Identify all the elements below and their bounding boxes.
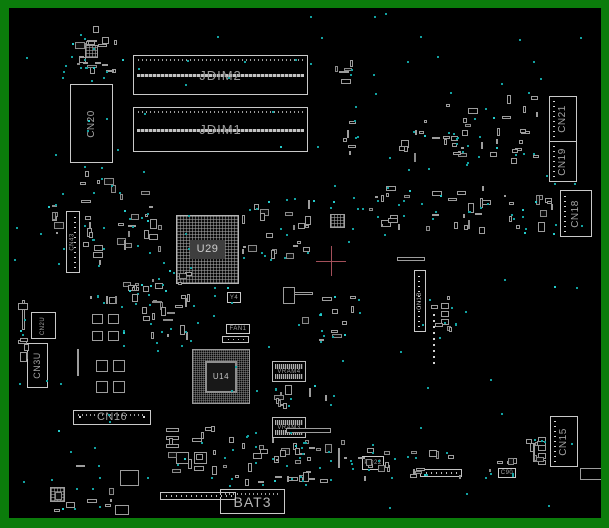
- part: [459, 475, 461, 479]
- test-point: [62, 77, 64, 79]
- test-point: [111, 185, 113, 187]
- part: [235, 475, 239, 478]
- part: [108, 314, 119, 324]
- test-point: [157, 350, 159, 352]
- test-point: [286, 234, 288, 236]
- part: [266, 233, 273, 238]
- test-point: [468, 211, 470, 213]
- part: [369, 208, 373, 211]
- test-point: [553, 233, 555, 235]
- component-y4[interactable]: Y4: [227, 292, 241, 303]
- part: [102, 64, 108, 66]
- test-point: [84, 59, 86, 61]
- pin-hole: [433, 314, 435, 316]
- component-fan1[interactable]: FAN1: [226, 324, 250, 334]
- test-point: [554, 286, 556, 288]
- test-point: [103, 77, 105, 79]
- part: [350, 296, 356, 299]
- test-point: [247, 435, 249, 437]
- component-cn3u[interactable]: CN3U: [27, 343, 48, 388]
- part: [482, 186, 484, 191]
- test-point: [554, 183, 556, 185]
- test-point: [490, 473, 492, 475]
- test-point: [190, 340, 192, 342]
- component-vram4[interactable]: VRAM4: [272, 361, 306, 382]
- test-point: [214, 287, 216, 289]
- part: [113, 381, 125, 393]
- test-point: [141, 284, 143, 286]
- part: [343, 138, 347, 142]
- part: [410, 474, 417, 478]
- test-point: [428, 168, 430, 170]
- test-point: [123, 332, 125, 334]
- test-point: [377, 216, 379, 218]
- part: [143, 286, 149, 292]
- test-point: [185, 233, 187, 235]
- part: [185, 298, 187, 307]
- part: [293, 292, 313, 295]
- part: [120, 470, 139, 486]
- test-point: [55, 204, 57, 206]
- test-point: [261, 252, 263, 254]
- part: [229, 437, 234, 443]
- component-cn18[interactable]: CN18: [560, 190, 592, 237]
- part: [212, 466, 217, 475]
- pin-row: [138, 111, 303, 113]
- test-point: [394, 458, 396, 460]
- part: [364, 476, 366, 481]
- test-point: [80, 67, 82, 69]
- part: [415, 130, 417, 135]
- part: [424, 120, 427, 123]
- test-point: [409, 190, 411, 192]
- component-cn19[interactable]: CN19: [549, 141, 577, 182]
- test-point: [58, 263, 60, 265]
- test-point: [76, 488, 78, 490]
- test-point: [295, 445, 297, 447]
- test-point: [466, 493, 468, 495]
- part: [76, 465, 85, 467]
- component-cn3u-label: CN3U: [33, 352, 42, 379]
- part: [243, 246, 246, 248]
- test-point: [348, 241, 350, 243]
- board-canvas[interactable]: JDIM2JDIM1CN20CN43CN2UCN3UU29U14Y4FAN1VR…: [9, 8, 601, 518]
- test-point: [165, 290, 167, 292]
- part: [142, 307, 147, 314]
- test-point: [544, 441, 546, 443]
- part: [378, 465, 385, 472]
- test-point: [188, 215, 190, 217]
- test-point: [317, 146, 319, 148]
- test-point: [415, 457, 417, 459]
- part: [168, 452, 177, 458]
- test-point: [103, 302, 105, 304]
- part: [507, 95, 511, 104]
- test-point: [46, 380, 48, 382]
- pin-hole: [433, 356, 435, 358]
- part: [426, 226, 430, 231]
- test-point: [93, 48, 95, 50]
- part: [414, 153, 416, 162]
- test-point: [161, 331, 163, 333]
- part: [302, 317, 309, 324]
- test-point: [496, 147, 498, 149]
- test-point: [163, 262, 165, 264]
- test-point: [147, 213, 149, 215]
- part: [520, 129, 526, 133]
- component-y4-label: Y4: [230, 295, 238, 301]
- test-point: [437, 56, 439, 58]
- part: [83, 242, 89, 247]
- pin-hole: [433, 350, 435, 352]
- test-point: [294, 198, 296, 200]
- test-point: [103, 227, 105, 229]
- test-point: [188, 248, 190, 250]
- test-point: [504, 279, 506, 281]
- part: [152, 279, 154, 282]
- part: [536, 195, 540, 205]
- part: [519, 140, 523, 144]
- part: [94, 245, 103, 251]
- part: [90, 296, 92, 299]
- test-point: [330, 207, 332, 209]
- component-cn16[interactable]: CN16: [73, 410, 151, 425]
- test-point: [117, 149, 119, 151]
- test-point: [525, 228, 527, 230]
- test-point: [270, 259, 272, 261]
- boardview-stage: JDIM2JDIM1CN20CN43CN2UCN3UU29U14Y4FAN1VR…: [0, 0, 609, 528]
- test-point: [62, 193, 64, 195]
- part: [432, 137, 440, 139]
- test-point: [80, 34, 82, 36]
- part: [150, 219, 157, 229]
- part: [118, 223, 124, 226]
- test-point: [87, 130, 89, 132]
- test-point: [156, 342, 158, 344]
- test-point: [377, 200, 379, 202]
- test-point: [147, 477, 149, 479]
- test-point: [93, 192, 95, 194]
- component-cn20[interactable]: CN20: [70, 84, 113, 163]
- test-point: [108, 414, 110, 416]
- part: [128, 231, 130, 237]
- test-point: [330, 479, 332, 481]
- part: [79, 416, 81, 418]
- part: [248, 245, 257, 252]
- part: [75, 42, 85, 49]
- part: [172, 469, 181, 473]
- test-point: [123, 330, 125, 332]
- part: [375, 196, 378, 198]
- test-point: [487, 203, 489, 205]
- test-point: [272, 458, 274, 460]
- part: [309, 447, 315, 449]
- test-point: [300, 476, 302, 478]
- test-point: [373, 74, 375, 76]
- test-point: [515, 154, 517, 156]
- test-point: [522, 209, 524, 211]
- test-point: [185, 84, 187, 86]
- test-point: [24, 319, 26, 321]
- test-point: [501, 83, 503, 85]
- test-point: [14, 259, 16, 261]
- test-point: [255, 446, 257, 448]
- component-jdim2[interactable]: JDIM2: [133, 55, 308, 95]
- test-point: [456, 143, 458, 145]
- part: [280, 404, 284, 406]
- part: [272, 438, 274, 443]
- part: [93, 26, 99, 33]
- test-point: [150, 285, 152, 287]
- test-point: [149, 252, 151, 254]
- test-point: [193, 305, 195, 307]
- test-point: [231, 390, 233, 392]
- test-point: [351, 69, 353, 71]
- part: [530, 443, 534, 452]
- part: [175, 305, 183, 308]
- test-point: [255, 432, 257, 434]
- test-point: [457, 137, 459, 139]
- component-cn1b[interactable]: CN1B: [414, 270, 426, 332]
- part: [526, 439, 532, 444]
- part: [540, 210, 547, 217]
- part: [185, 272, 187, 274]
- part: [158, 246, 161, 252]
- test-point: [429, 299, 431, 301]
- component-cn15[interactable]: CN15: [550, 416, 578, 467]
- part: [149, 206, 153, 208]
- part: [293, 245, 298, 247]
- test-point: [546, 175, 548, 177]
- test-point: [243, 257, 245, 259]
- test-point: [301, 447, 303, 449]
- test-point: [350, 74, 352, 76]
- part: [462, 130, 468, 136]
- part: [536, 112, 538, 117]
- test-point: [302, 480, 304, 482]
- component-cn21[interactable]: CN21: [549, 96, 577, 142]
- component-cn43-label: CN43: [70, 233, 76, 250]
- test-point: [462, 151, 464, 153]
- test-point: [548, 505, 550, 507]
- part: [286, 253, 294, 259]
- test-point: [523, 153, 525, 155]
- part: [124, 240, 126, 250]
- test-point: [426, 474, 428, 476]
- part: [349, 151, 351, 155]
- test-point: [227, 287, 229, 289]
- part: [115, 505, 129, 515]
- test-point: [319, 467, 321, 469]
- test-point: [313, 200, 315, 202]
- component-cn18-label: CN18: [571, 200, 581, 228]
- test-point: [353, 197, 355, 199]
- test-point: [420, 427, 422, 429]
- part: [307, 457, 311, 461]
- part: [143, 316, 150, 321]
- test-point: [450, 92, 452, 94]
- test-point: [119, 192, 121, 194]
- part: [24, 344, 29, 351]
- test-point: [70, 451, 72, 453]
- part: [435, 323, 443, 327]
- part: [20, 338, 28, 342]
- test-point: [467, 162, 469, 164]
- test-point: [355, 106, 357, 108]
- part: [105, 504, 111, 507]
- test-point: [190, 267, 192, 269]
- part: [384, 451, 390, 455]
- test-point: [228, 77, 230, 79]
- test-point: [169, 270, 171, 272]
- part: [115, 296, 117, 304]
- component-jdim2-label: JDIM2: [199, 69, 242, 82]
- part: [97, 180, 100, 184]
- part: [87, 499, 97, 503]
- test-point: [305, 484, 307, 486]
- part: [260, 213, 265, 221]
- part: [322, 297, 332, 301]
- part: [338, 448, 340, 468]
- test-point: [187, 60, 189, 62]
- test-point: [148, 294, 150, 296]
- test-point: [84, 38, 86, 40]
- test-point: [501, 413, 503, 415]
- test-point: [256, 208, 258, 210]
- test-point: [121, 306, 123, 308]
- test-point: [143, 171, 145, 173]
- test-point: [540, 78, 542, 80]
- part: [449, 327, 452, 332]
- part: [132, 294, 138, 302]
- test-point: [162, 284, 164, 286]
- part: [95, 62, 101, 64]
- pin-dots: [564, 195, 566, 232]
- test-point: [372, 444, 374, 446]
- test-point: [435, 211, 437, 213]
- test-point: [305, 442, 307, 444]
- test-point: [310, 63, 312, 65]
- pin-hole: [433, 332, 435, 334]
- part: [242, 215, 245, 224]
- part: [320, 479, 328, 483]
- test-point: [403, 215, 405, 217]
- test-point: [485, 477, 487, 479]
- part: [305, 216, 311, 225]
- test-point: [535, 201, 537, 203]
- test-point: [94, 447, 96, 449]
- pin-hole: [433, 344, 435, 346]
- test-point: [374, 16, 376, 18]
- part: [276, 398, 279, 404]
- part: [475, 213, 482, 215]
- part: [497, 461, 503, 464]
- test-point: [389, 157, 391, 159]
- pin-row: [138, 59, 303, 61]
- test-point: [480, 207, 482, 209]
- test-point: [332, 336, 334, 338]
- pin-hole: [433, 362, 435, 364]
- test-point: [231, 478, 233, 480]
- part: [347, 130, 349, 138]
- part: [77, 63, 80, 65]
- part: [509, 216, 512, 222]
- component-bat3-label: BAT3: [234, 495, 272, 509]
- part: [151, 332, 154, 339]
- test-point: [424, 135, 426, 137]
- part: [96, 360, 108, 372]
- test-point: [320, 341, 322, 343]
- part: [285, 385, 292, 395]
- test-point: [214, 295, 216, 297]
- part: [120, 194, 123, 200]
- part: [131, 214, 139, 220]
- part: [245, 479, 249, 486]
- test-point: [74, 508, 76, 510]
- part: [77, 349, 79, 376]
- part: [348, 145, 356, 148]
- test-point: [181, 345, 183, 347]
- test-point: [533, 153, 535, 155]
- test-point: [391, 477, 393, 479]
- part: [152, 313, 155, 320]
- part: [85, 171, 89, 177]
- part: [242, 249, 244, 254]
- test-point: [512, 475, 514, 477]
- test-point: [224, 457, 226, 459]
- test-point: [302, 453, 304, 455]
- part: [141, 191, 150, 195]
- test-point: [323, 335, 325, 337]
- part: [429, 450, 437, 457]
- component-cn43[interactable]: CN43: [66, 211, 80, 273]
- test-point: [455, 324, 457, 326]
- pin-dots: [554, 421, 556, 462]
- component-cn19-label: CN19: [558, 148, 568, 176]
- part: [260, 449, 268, 454]
- test-point: [129, 218, 131, 220]
- part: [223, 465, 227, 468]
- part: [275, 476, 282, 478]
- pin-hole: [433, 326, 435, 328]
- test-point: [352, 228, 354, 230]
- test-point: [291, 478, 293, 480]
- part: [463, 214, 465, 218]
- test-point: [72, 43, 74, 45]
- component-u14[interactable]: U14: [192, 349, 250, 404]
- part: [316, 448, 321, 451]
- part: [454, 222, 458, 229]
- part: [385, 462, 389, 468]
- test-point: [20, 330, 22, 332]
- part: [242, 443, 245, 449]
- part: [80, 182, 86, 185]
- part: [397, 257, 425, 261]
- test-point: [185, 331, 187, 333]
- test-point: [571, 443, 573, 445]
- test-point: [576, 287, 578, 289]
- part: [85, 45, 98, 58]
- part: [332, 309, 338, 314]
- component-cn2u[interactable]: CN2U: [31, 312, 56, 339]
- part: [160, 492, 236, 500]
- part: [358, 457, 365, 459]
- part: [167, 312, 175, 314]
- part: [52, 212, 56, 220]
- part: [325, 395, 327, 401]
- test-point: [177, 464, 179, 466]
- part: [276, 459, 279, 461]
